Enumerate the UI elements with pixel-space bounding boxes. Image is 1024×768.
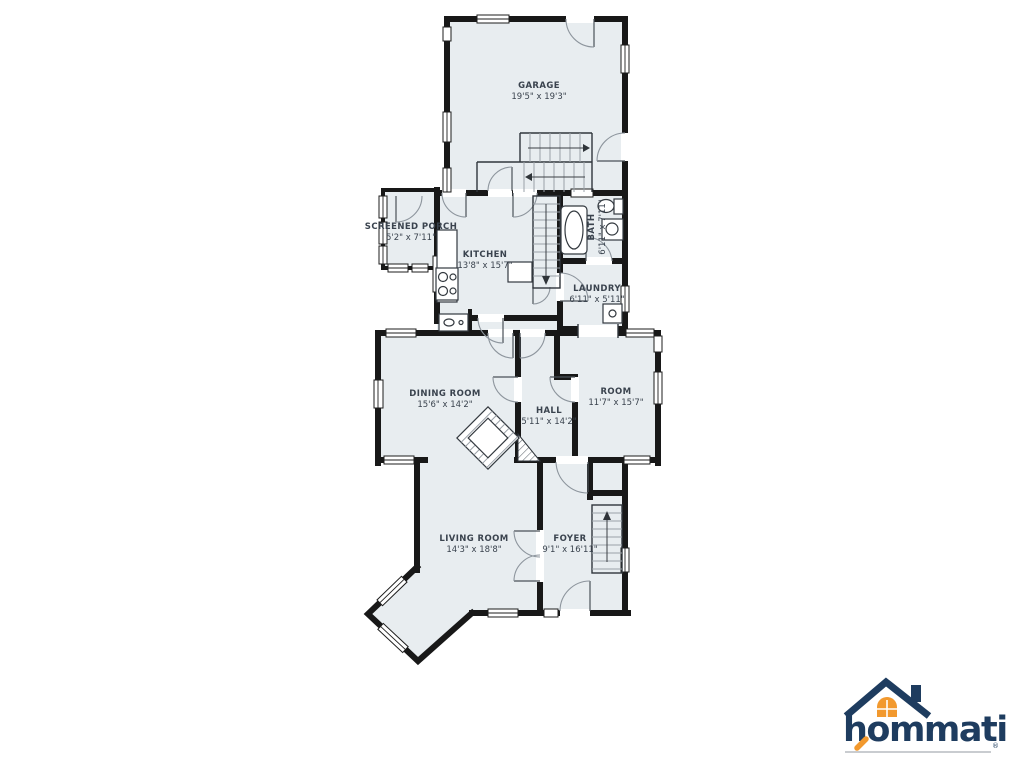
floor-plan-page: GARAGE 19'5" x 19'3" SCREENED PORCH 5'2"… bbox=[0, 0, 1024, 768]
registered-trademark: ® bbox=[992, 742, 999, 750]
logo-chimney-icon bbox=[911, 685, 921, 702]
room-dims: 11'7" x 15'7" bbox=[588, 398, 643, 408]
alcove-sink bbox=[439, 314, 468, 331]
living-room-dims: 14'3" x 18'8" bbox=[446, 545, 501, 555]
logo-wordmark: hommati bbox=[843, 710, 1007, 750]
screened-porch-dims: 5'2" x 7'11" bbox=[386, 233, 436, 243]
floor-plan-svg: GARAGE 19'5" x 19'3" SCREENED PORCH 5'2"… bbox=[0, 0, 1024, 768]
bath-dims: 6'11" x 7'11" bbox=[598, 199, 608, 254]
garage-label: GARAGE bbox=[518, 81, 560, 91]
kitchen-dims: 13'8" x 15'7" bbox=[457, 261, 512, 271]
foyer-dims: 9'1" x 16'11" bbox=[542, 545, 597, 555]
dining-room-label: DINING ROOM bbox=[409, 389, 480, 399]
foyer-label: FOYER bbox=[553, 534, 586, 544]
hommati-logo: hommati ® bbox=[843, 682, 1007, 752]
hall-dims: 5'11" x 14'2" bbox=[521, 417, 576, 427]
garage-dims: 19'5" x 19'3" bbox=[511, 92, 566, 102]
screened-porch-label: SCREENED PORCH bbox=[365, 222, 457, 232]
kitchen-label: KITCHEN bbox=[463, 250, 508, 260]
dining-room-dims: 15'6" x 14'2" bbox=[417, 400, 472, 410]
room-label: ROOM bbox=[600, 387, 631, 397]
bathtub bbox=[561, 206, 587, 254]
garage-floor bbox=[447, 19, 625, 193]
living-room-label: LIVING ROOM bbox=[439, 534, 508, 544]
laundry-dims: 6'11" x 5'11" bbox=[569, 295, 624, 305]
hall-label: HALL bbox=[536, 406, 562, 416]
stove bbox=[436, 268, 458, 300]
laundry-label: LAUNDRY bbox=[573, 284, 621, 294]
bath-label: BATH bbox=[587, 214, 597, 241]
washer bbox=[603, 304, 622, 323]
